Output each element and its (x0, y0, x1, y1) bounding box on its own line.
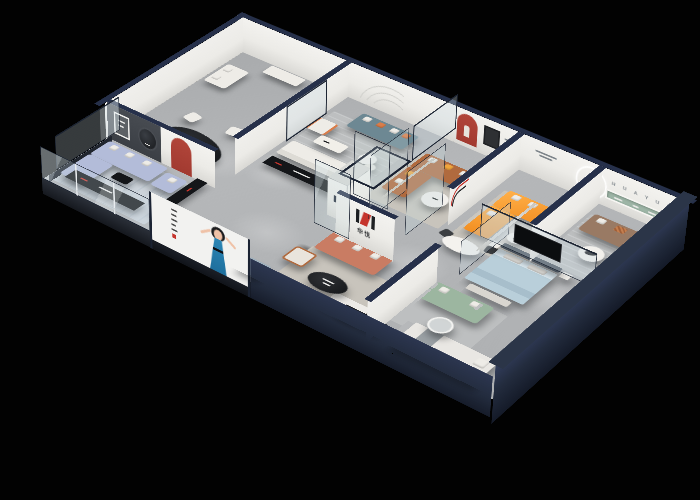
logo-black-bar (371, 216, 375, 231)
potted-tree (336, 66, 369, 120)
logo-black-bar (356, 209, 360, 224)
pillow (351, 244, 364, 252)
pillow (468, 301, 481, 309)
pillow (211, 74, 222, 80)
arch-niche-red (456, 111, 478, 148)
table-decor (323, 140, 330, 143)
brand-mark (275, 162, 283, 166)
pillow (438, 286, 451, 294)
vertical-text-mark (171, 208, 177, 213)
dining-chair (182, 112, 203, 123)
pillow (375, 122, 387, 128)
shelf-items (614, 197, 623, 202)
niche-figurine (464, 125, 470, 138)
pillow (369, 253, 382, 261)
console-detail (293, 170, 311, 178)
pillow (527, 202, 539, 209)
round-wall-art (138, 124, 158, 154)
pillow (124, 152, 136, 159)
shelf-items (633, 205, 639, 209)
pillow (108, 145, 120, 152)
pillow (222, 67, 233, 73)
woman-arm-left (200, 229, 211, 233)
glass-mullion (113, 182, 116, 215)
billboard-text-marks (171, 208, 179, 245)
woman-arm-right (225, 237, 236, 250)
pillow (388, 128, 400, 135)
billboard (149, 191, 250, 298)
bear-tray (293, 236, 305, 239)
showroom-floor: H U A Y U E (42, 52, 674, 401)
vertical-text-mark (171, 218, 177, 223)
pillow (510, 194, 522, 201)
arch-niche-red-2 (171, 134, 192, 177)
brand-mark (186, 188, 193, 192)
showroom-scene: H U A Y U E (0, 0, 700, 500)
pillow (141, 160, 153, 167)
patterned-cushion (613, 225, 629, 234)
logo-red-bar (360, 212, 371, 227)
red-seal (172, 233, 176, 239)
vertical-text-mark (171, 223, 176, 227)
vertical-text-mark (171, 213, 176, 217)
pillow (166, 177, 178, 184)
isometric-scene: H U A Y U E (0, 0, 700, 500)
glass-mullion (75, 164, 78, 197)
vertical-text-mark (171, 228, 177, 233)
pillow (595, 218, 607, 225)
pillow (361, 116, 373, 122)
